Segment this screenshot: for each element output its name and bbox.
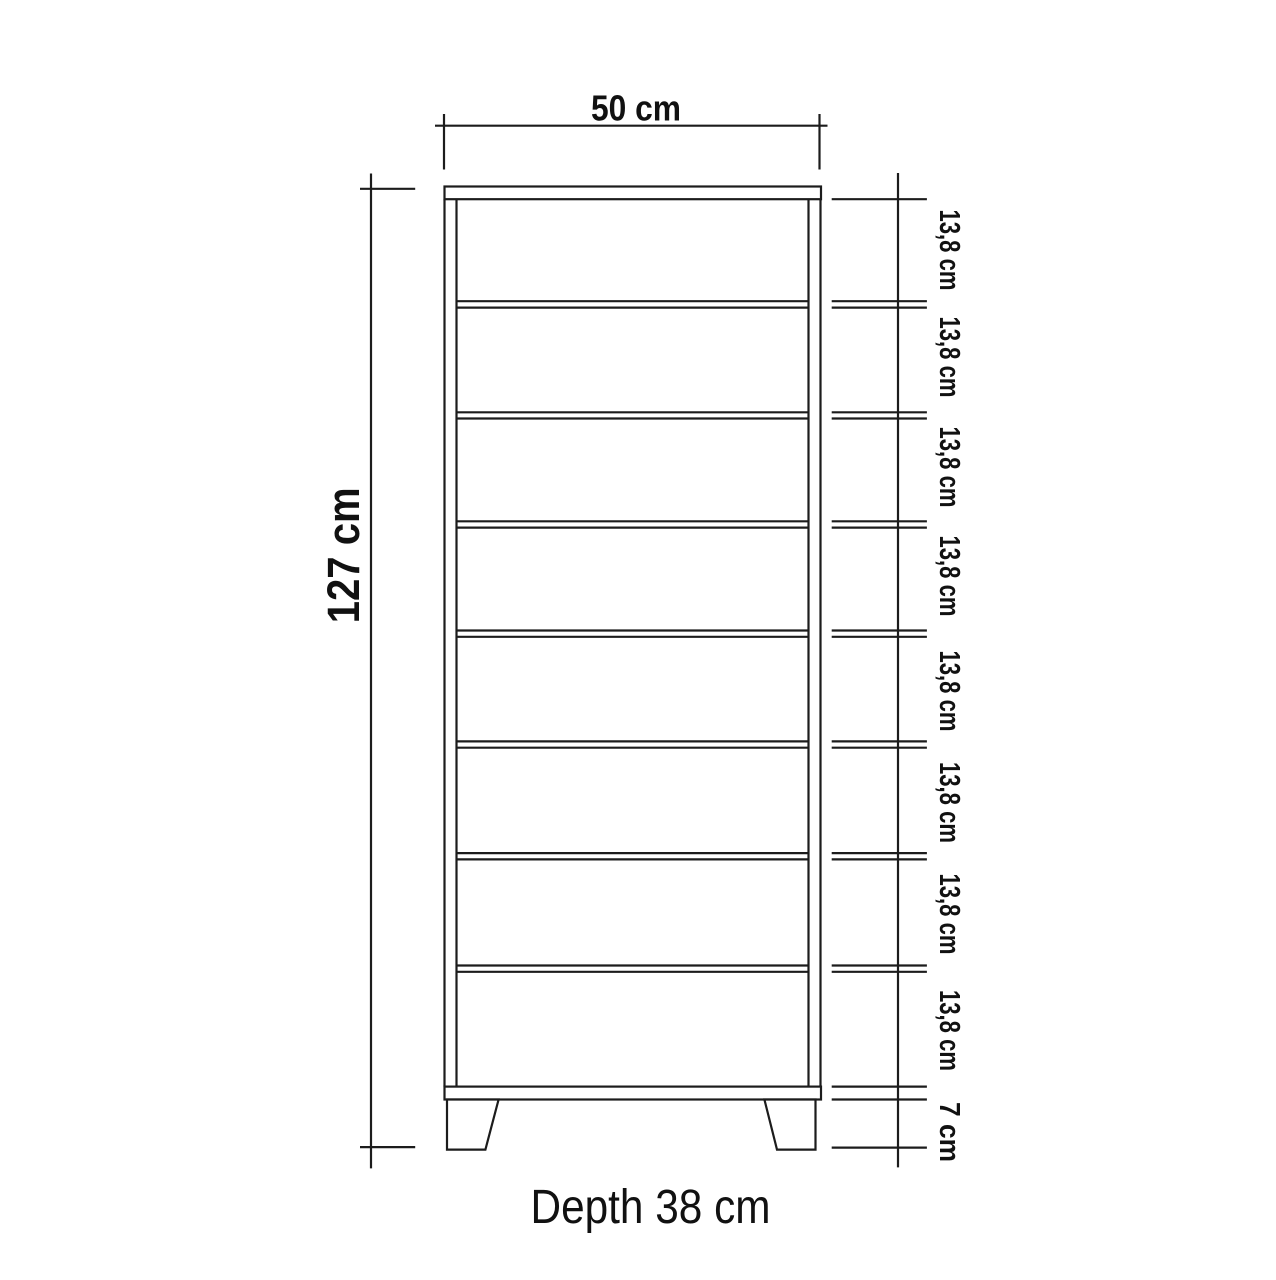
- svg-text:13,8 cm: 13,8 cm: [933, 536, 965, 617]
- svg-text:127 cm: 127 cm: [318, 487, 369, 623]
- svg-text:7 cm: 7 cm: [933, 1102, 965, 1162]
- svg-text:13,8 cm: 13,8 cm: [933, 651, 965, 732]
- svg-text:13,8 cm: 13,8 cm: [933, 762, 965, 843]
- svg-text:Depth 38 cm: Depth 38 cm: [531, 1181, 771, 1234]
- svg-text:13,8 cm: 13,8 cm: [933, 427, 965, 508]
- svg-text:13,8 cm: 13,8 cm: [933, 210, 965, 291]
- svg-text:13,8 cm: 13,8 cm: [933, 317, 965, 398]
- svg-text:13,8 cm: 13,8 cm: [933, 990, 965, 1071]
- svg-text:50 cm: 50 cm: [591, 88, 681, 129]
- svg-text:13,8 cm: 13,8 cm: [933, 874, 965, 955]
